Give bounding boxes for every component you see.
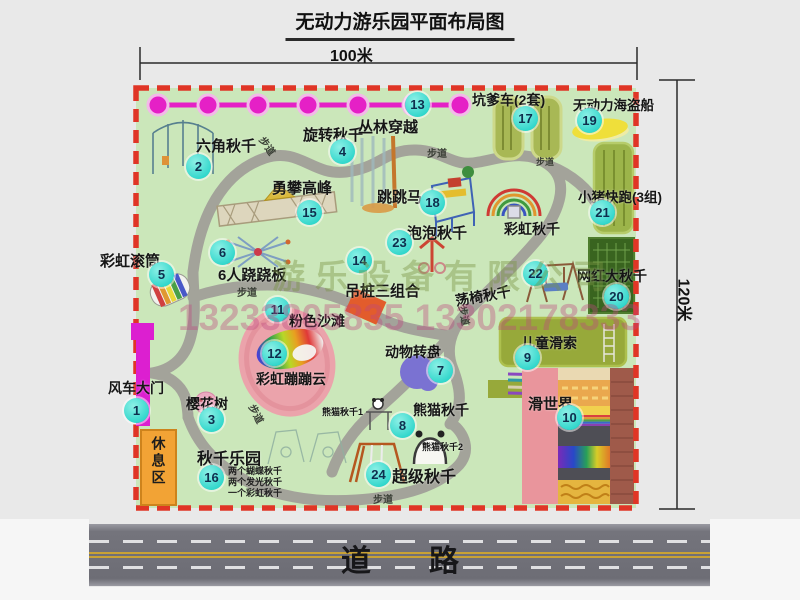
watermark-phone: 13233805835 13302178333 — [178, 297, 641, 339]
attraction-badge-3: 3 — [199, 407, 224, 432]
attraction-label-13: 丛林穿越 — [358, 116, 418, 137]
attraction-badge-17: 17 — [513, 106, 538, 131]
attraction-label-2: 六角秋千 — [196, 135, 256, 156]
attraction-label-15: 勇攀高峰 — [272, 177, 332, 198]
swing-note-3: 一个彩虹秋千 — [228, 488, 282, 499]
panda-swing-2-label: 熊猫秋千2 — [422, 440, 463, 453]
attraction-badge-6: 6 — [210, 240, 235, 265]
swing-paradise-notes: 两个蝴蝶秋千 两个发光秋千 一个彩虹秋千 — [228, 466, 282, 499]
park-plan-screenshot: 无动力游乐园平面布局图 100米 120米 游乐设备有限公司 132338058… — [0, 0, 800, 600]
attraction-badge-15: 15 — [297, 200, 322, 225]
attraction-badge-12: 12 — [262, 341, 287, 366]
attraction-badge-4: 4 — [330, 139, 355, 164]
swing-note-2: 两个发光秋千 — [228, 477, 282, 488]
walkway-label-3: 步道 — [536, 155, 554, 168]
attraction-badge-8: 8 — [390, 413, 415, 438]
swing-note-1: 两个蝴蝶秋千 — [228, 466, 282, 477]
walkway-label-7: 步道 — [373, 491, 393, 506]
road-label: 道路 — [29, 536, 800, 580]
attraction-badge-2: 2 — [186, 154, 211, 179]
attraction-label-18: 跳跳马 — [377, 186, 422, 207]
rest-area-label: 休息区 — [149, 436, 169, 487]
attraction-label-12: 彩虹蹦蹦云 — [256, 369, 326, 389]
attraction-badge-1: 1 — [124, 398, 149, 423]
slide-world-icon — [522, 368, 634, 504]
rest-area-box: 休息区 — [140, 429, 177, 506]
attraction-label-1: 风车大门 — [108, 378, 164, 398]
width-dimension-label: 100米 — [330, 42, 373, 66]
page-title: 无动力游乐园平面布局图 — [285, 7, 514, 41]
attraction-badge-10: 10 — [557, 405, 582, 430]
rainbow-swing-label: 彩虹秋千 — [504, 219, 560, 239]
attraction-label-17: 坑爹车(2套) — [472, 90, 545, 110]
attraction-label-24: 超级秋千 — [392, 463, 456, 487]
attraction-label-8: 熊猫秋千 — [413, 400, 469, 420]
attraction-label-23: 泡泡秋千 — [407, 222, 467, 243]
height-dimension-label: 120米 — [673, 279, 697, 322]
attraction-badge-16: 16 — [199, 465, 224, 490]
watermark-company: 游乐设备有限公司 — [272, 250, 616, 298]
attraction-badge-19: 19 — [577, 108, 602, 133]
attraction-badge-7: 7 — [428, 358, 453, 383]
attraction-badge-9: 9 — [515, 345, 540, 370]
attraction-badge-24: 24 — [366, 462, 391, 487]
panda-swing-1-label: 熊猫秋千1 — [322, 405, 363, 418]
page-margin-bottom — [0, 587, 800, 600]
walkway-label-2: 步道 — [427, 145, 447, 160]
attraction-badge-21: 21 — [590, 200, 615, 225]
attraction-badge-5: 5 — [149, 262, 174, 287]
attraction-badge-18: 18 — [420, 190, 445, 215]
attraction-label-21: 小猪快跑(3组) — [578, 186, 662, 206]
attraction-badge-13: 13 — [405, 92, 430, 117]
attraction-label-7: 动物转盘 — [385, 342, 441, 362]
